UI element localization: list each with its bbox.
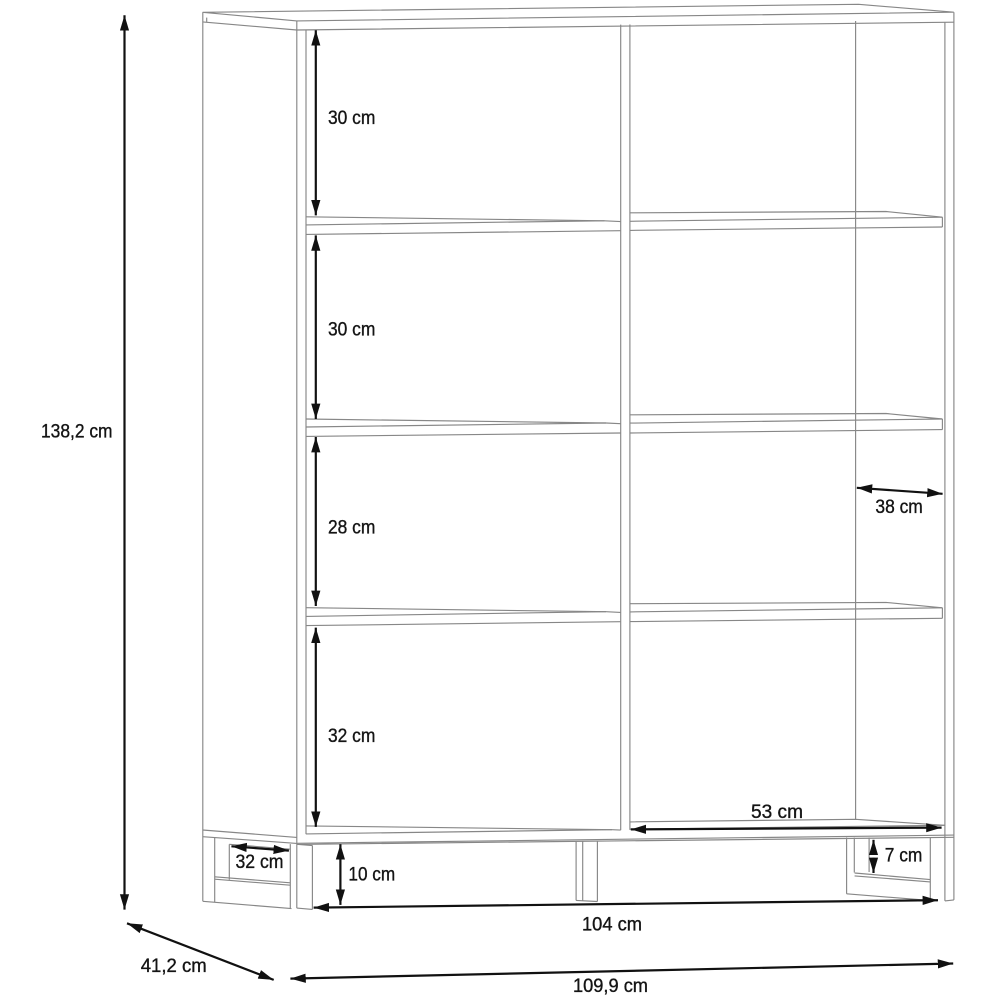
svg-text:41,2 cm: 41,2 cm bbox=[141, 956, 207, 977]
svg-text:28 cm: 28 cm bbox=[328, 517, 375, 538]
svg-text:30 cm: 30 cm bbox=[328, 319, 375, 340]
svg-text:10 cm: 10 cm bbox=[348, 865, 395, 886]
svg-text:32 cm: 32 cm bbox=[236, 852, 284, 873]
svg-text:38 cm: 38 cm bbox=[875, 497, 922, 518]
svg-text:109,9 cm: 109,9 cm bbox=[573, 976, 648, 997]
svg-text:30 cm: 30 cm bbox=[328, 108, 375, 129]
svg-text:32 cm: 32 cm bbox=[328, 726, 375, 747]
svg-text:138,2 cm: 138,2 cm bbox=[41, 422, 113, 443]
svg-text:104 cm: 104 cm bbox=[582, 915, 642, 936]
svg-text:53 cm: 53 cm bbox=[751, 802, 803, 823]
svg-text:7 cm: 7 cm bbox=[885, 845, 923, 866]
